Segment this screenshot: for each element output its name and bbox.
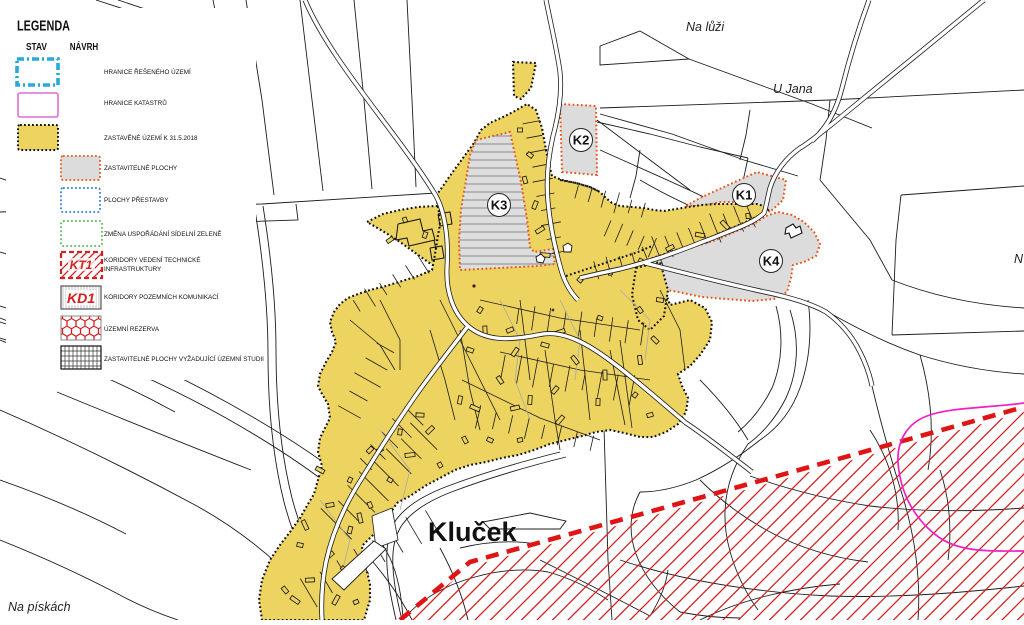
svg-text:ZASTAVĚNÉ ÚZEMÍ K 31.5.2018: ZASTAVĚNÉ ÚZEMÍ K 31.5.2018 — [104, 133, 198, 142]
svg-text:PLOCHY PŘESTAVBY: PLOCHY PŘESTAVBY — [104, 195, 169, 204]
svg-text:HRANICE KATASTRŮ: HRANICE KATASTRŮ — [104, 98, 167, 107]
svg-text:INFRASTRUKTURY: INFRASTRUKTURY — [104, 266, 162, 273]
svg-text:STAV: STAV — [26, 42, 47, 53]
svg-text:Na pískách: Na pískách — [8, 600, 71, 614]
svg-text:Na lůži: Na lůži — [686, 20, 725, 34]
svg-text:N: N — [1014, 252, 1024, 266]
svg-text:U Jana: U Jana — [773, 82, 813, 96]
svg-text:ZASTAVITELNÉ PLOCHY VYŽADUJÍCÍ: ZASTAVITELNÉ PLOCHY VYŽADUJÍCÍ ÚZEMNÍ ST… — [104, 354, 264, 363]
svg-text:ZMĚNA USPOŘÁDÁNÍ SÍDELNÍ ZELEN: ZMĚNA USPOŘÁDÁNÍ SÍDELNÍ ZELENĚ — [104, 229, 222, 238]
svg-text:KORIDORY POZEMNÍCH KOMUNIKACÍ: KORIDORY POZEMNÍCH KOMUNIKACÍ — [104, 292, 219, 301]
svg-text:K4: K4 — [763, 254, 780, 269]
svg-text:Kluček: Kluček — [428, 517, 518, 547]
svg-text:HRANICE ŘEŠENÉHO ÚZEMÍ: HRANICE ŘEŠENÉHO ÚZEMÍ — [104, 67, 191, 76]
svg-text:KT1: KT1 — [70, 258, 93, 272]
svg-text:ÚZEMNÍ REZERVA: ÚZEMNÍ REZERVA — [104, 324, 160, 333]
svg-text:NÁVRH: NÁVRH — [70, 42, 99, 53]
svg-text:LEGENDA: LEGENDA — [17, 19, 70, 35]
svg-text:ZASTAVITELNÉ PLOCHY: ZASTAVITELNÉ PLOCHY — [104, 163, 178, 172]
svg-text:K2: K2 — [573, 133, 590, 148]
svg-text:K1: K1 — [736, 188, 753, 203]
svg-text:KD1: KD1 — [67, 290, 95, 306]
svg-text:K3: K3 — [491, 198, 508, 213]
svg-text:KORIDORY VEDENÍ TECHNICKÉ: KORIDORY VEDENÍ TECHNICKÉ — [104, 255, 201, 264]
